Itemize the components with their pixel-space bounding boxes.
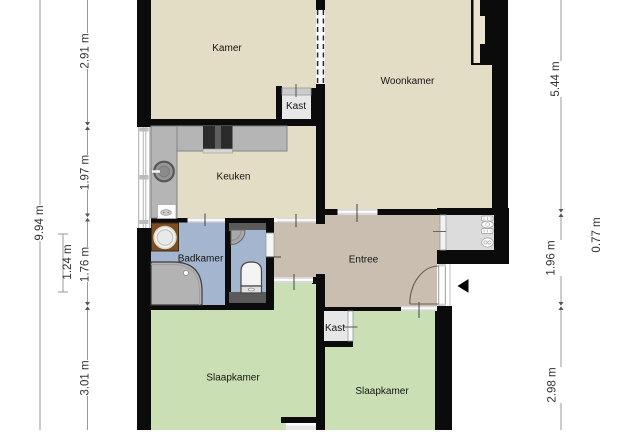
svg-text:0.77 m: 0.77 m	[591, 217, 603, 252]
svg-text:Slaapkamer: Slaapkamer	[355, 386, 409, 397]
svg-text:3.01 m: 3.01 m	[80, 360, 92, 395]
svg-text:5.44 m: 5.44 m	[550, 61, 562, 96]
svg-text:1.76 m: 1.76 m	[80, 247, 92, 282]
svg-text:Woonkamer: Woonkamer	[381, 76, 435, 87]
svg-text:9.94 m: 9.94 m	[34, 205, 46, 240]
svg-text:Kast: Kast	[325, 323, 345, 334]
svg-text:1.24 m: 1.24 m	[62, 244, 74, 279]
svg-text:Kast: Kast	[286, 101, 306, 112]
svg-text:1.97 m: 1.97 m	[80, 155, 92, 190]
svg-text:Badkamer: Badkamer	[178, 254, 224, 265]
svg-text:Entree: Entree	[349, 255, 379, 266]
svg-text:1.96 m: 1.96 m	[546, 240, 558, 275]
svg-text:Kamer: Kamer	[212, 43, 242, 54]
svg-text:2.98 m: 2.98 m	[547, 367, 559, 402]
svg-text:Slaapkamer: Slaapkamer	[206, 373, 260, 384]
svg-text:2.91 m: 2.91 m	[80, 33, 92, 68]
svg-text:Keuken: Keuken	[217, 172, 251, 183]
